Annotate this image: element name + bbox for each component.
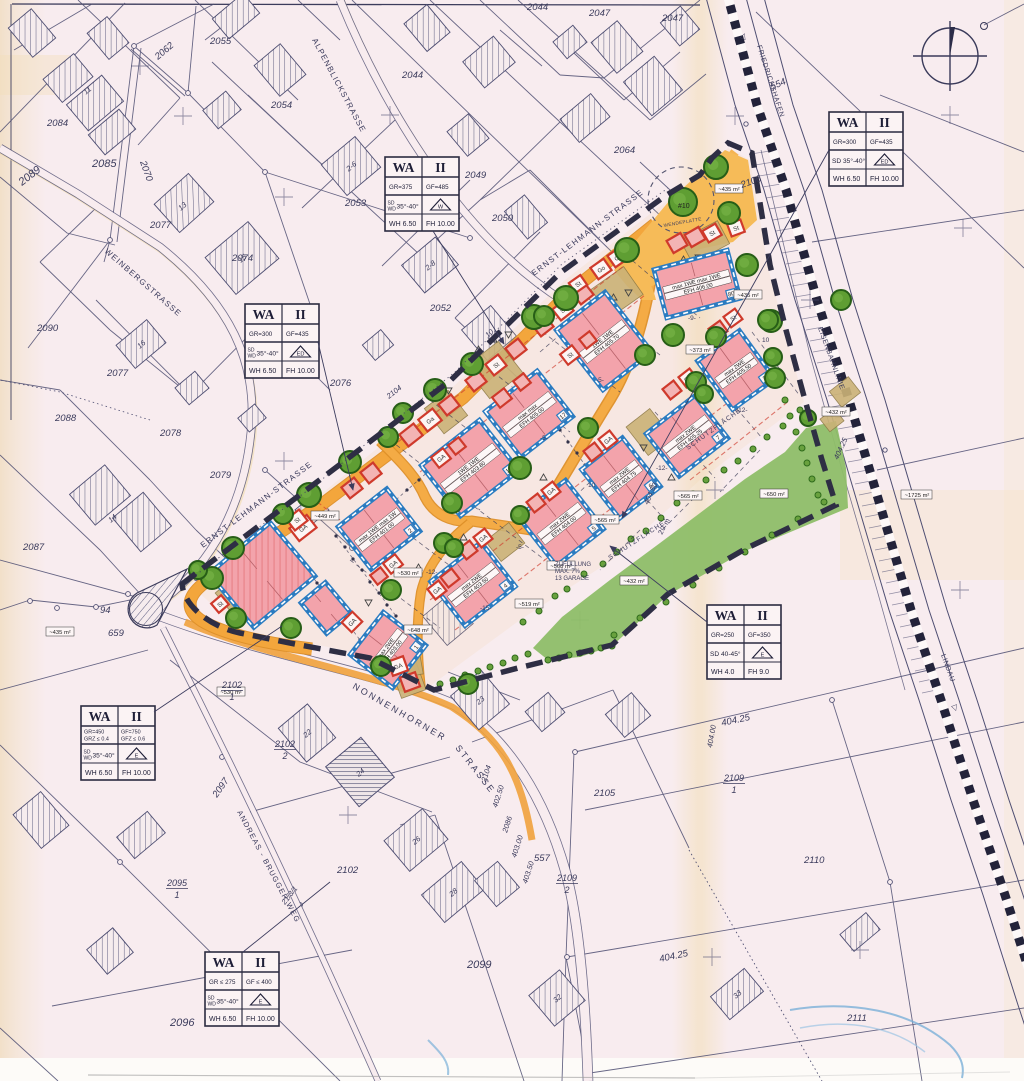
svg-text:W: W — [438, 205, 444, 211]
svg-text:II: II — [757, 608, 768, 623]
svg-text:#10: #10 — [678, 203, 690, 210]
svg-text:2076: 2076 — [329, 378, 352, 389]
svg-text:FH 10.00: FH 10.00 — [870, 176, 899, 183]
svg-text:SD 40-45°: SD 40-45° — [710, 650, 741, 658]
svg-text:-12-: -12- — [736, 407, 748, 414]
svg-text:~449 m²: ~449 m² — [314, 514, 335, 520]
svg-text:2079: 2079 — [209, 470, 232, 481]
svg-text:2052: 2052 — [429, 303, 452, 314]
svg-text:WA: WA — [715, 608, 737, 623]
svg-text:2078: 2078 — [159, 428, 182, 439]
svg-text:FH 10.00: FH 10.00 — [286, 368, 315, 375]
svg-text:WA: WA — [213, 955, 235, 970]
svg-text:-12-: -12- — [656, 465, 668, 472]
svg-text:2049: 2049 — [464, 170, 487, 181]
svg-text:WD: WD — [208, 1002, 217, 1008]
svg-text:GF=350: GF=350 — [748, 632, 771, 639]
svg-text:~519 m²: ~519 m² — [518, 602, 539, 608]
svg-text:~1725 m²: ~1725 m² — [905, 493, 930, 499]
svg-text:~648 m²: ~648 m² — [407, 628, 428, 634]
svg-text:GF=435: GF=435 — [286, 331, 309, 338]
svg-text:FH 10.00: FH 10.00 — [426, 221, 455, 228]
svg-text:2110: 2110 — [803, 855, 825, 866]
svg-text:~435 m²: ~435 m² — [718, 187, 739, 193]
svg-text:WH 6.50: WH 6.50 — [833, 176, 860, 183]
svg-text:GF=750: GF=750 — [121, 730, 141, 736]
svg-text:2088: 2088 — [54, 413, 77, 424]
svg-text:MAX. 7%: MAX. 7% — [555, 569, 581, 575]
svg-text:FH 10.00: FH 10.00 — [246, 1016, 275, 1023]
svg-text:35°-40°: 35°-40° — [257, 350, 280, 358]
svg-text:~650 m²: ~650 m² — [763, 492, 784, 498]
svg-text:2096: 2096 — [169, 1017, 195, 1029]
svg-text:94: 94 — [100, 605, 111, 616]
svg-text:WD: WD — [84, 756, 93, 762]
svg-text:2050: 2050 — [491, 213, 514, 224]
svg-text:GF=435: GF=435 — [870, 139, 893, 146]
svg-text:~565 m²: ~565 m² — [677, 494, 698, 500]
svg-text:WA: WA — [393, 160, 415, 175]
svg-text:~435 m²: ~435 m² — [49, 630, 70, 636]
svg-text:2084: 2084 — [46, 118, 68, 129]
svg-text:2044: 2044 — [526, 2, 548, 13]
svg-text:WH 6.50: WH 6.50 — [389, 221, 416, 228]
svg-text:2111: 2111 — [846, 1013, 867, 1024]
svg-text:E: E — [761, 653, 765, 659]
svg-text:2099: 2099 — [466, 959, 491, 971]
svg-text:FH 10.00: FH 10.00 — [122, 770, 151, 777]
svg-text:FH 9.0: FH 9.0 — [748, 669, 769, 676]
svg-text:2064: 2064 — [613, 145, 635, 156]
svg-text:ED: ED — [881, 160, 889, 166]
svg-text:2044: 2044 — [401, 70, 423, 81]
svg-text:WH 6.50: WH 6.50 — [209, 1016, 236, 1023]
svg-text:WD: WD — [248, 354, 257, 360]
svg-text:WA: WA — [837, 115, 859, 130]
svg-text:2109: 2109 — [556, 873, 577, 883]
svg-text:35°-40°: 35°-40° — [217, 998, 240, 1006]
svg-text:2105: 2105 — [593, 788, 616, 799]
svg-text:II: II — [879, 115, 890, 130]
svg-text:2085: 2085 — [91, 158, 117, 170]
svg-text:2: 2 — [281, 751, 287, 761]
svg-text:WH 6.50: WH 6.50 — [249, 368, 276, 375]
svg-text:GR=375: GR=375 — [389, 184, 413, 191]
svg-text:-15-: -15- — [480, 605, 492, 612]
svg-text:2053: 2053 — [344, 198, 367, 209]
svg-text:2047: 2047 — [661, 13, 684, 24]
svg-text:1: 1 — [174, 890, 179, 900]
svg-text:GR=450: GR=450 — [84, 730, 104, 736]
svg-text:GF ≤ 400: GF ≤ 400 — [246, 979, 272, 986]
svg-text:~530 m²: ~530 m² — [397, 571, 418, 577]
svg-text:10: 10 — [762, 337, 770, 344]
svg-text:35°-40°: 35°-40° — [93, 752, 116, 760]
svg-text:WA: WA — [89, 709, 111, 724]
svg-text:GR=250: GR=250 — [711, 632, 735, 639]
svg-text:II: II — [295, 307, 306, 322]
svg-text:GF=485: GF=485 — [426, 184, 449, 191]
svg-text:2077: 2077 — [106, 368, 129, 379]
svg-text:2087: 2087 — [22, 542, 45, 553]
svg-text:~373 m²: ~373 m² — [689, 348, 710, 354]
svg-text:GR=300: GR=300 — [833, 139, 857, 146]
svg-text:2047: 2047 — [588, 8, 611, 19]
svg-text:WH 6.50: WH 6.50 — [85, 770, 112, 777]
svg-text:-5-: -5- — [540, 435, 548, 442]
svg-text:GR=300: GR=300 — [249, 331, 273, 338]
svg-text:659: 659 — [108, 628, 125, 639]
svg-text:GFZ ≤ 0.6: GFZ ≤ 0.6 — [121, 737, 145, 743]
svg-text:II: II — [435, 160, 446, 175]
svg-text:2102: 2102 — [274, 739, 295, 749]
svg-text:II: II — [131, 709, 142, 724]
svg-text:1: 1 — [731, 785, 736, 795]
svg-text:2095: 2095 — [166, 878, 188, 888]
svg-text:2102: 2102 — [221, 680, 242, 690]
svg-text:WD: WD — [388, 207, 397, 213]
svg-text:-12-: -12- — [426, 569, 438, 576]
svg-text:-9-: -9- — [688, 315, 696, 322]
svg-text:2054: 2054 — [270, 100, 292, 111]
svg-text:2055: 2055 — [209, 36, 232, 47]
svg-text:II: II — [255, 955, 266, 970]
svg-text:ED: ED — [297, 352, 305, 358]
svg-text:2074: 2074 — [231, 253, 253, 264]
svg-text:~432 m²: ~432 m² — [623, 579, 644, 585]
svg-text:2077: 2077 — [149, 220, 172, 231]
svg-text:~565 m²: ~565 m² — [594, 518, 615, 524]
svg-text:2: 2 — [563, 885, 569, 895]
svg-text:35°-40°: 35°-40° — [397, 203, 420, 211]
svg-text:1: 1 — [229, 692, 234, 702]
svg-text:2090: 2090 — [36, 323, 59, 334]
svg-text:13 GARAGE: 13 GARAGE — [555, 576, 589, 582]
svg-text:WA: WA — [253, 307, 275, 322]
svg-text:SD 35°-40°: SD 35°-40° — [832, 157, 865, 165]
svg-text:10: 10 — [588, 482, 596, 489]
svg-text:GRZ ≤ 0.4: GRZ ≤ 0.4 — [84, 737, 109, 743]
svg-text:ZUFÜLLUNG: ZUFÜLLUNG — [555, 561, 591, 568]
svg-text:2102: 2102 — [336, 865, 359, 876]
svg-text:-5-: -5- — [516, 544, 524, 551]
svg-text:E: E — [135, 754, 139, 760]
svg-text:2109: 2109 — [723, 773, 744, 783]
svg-text:WH 4.0: WH 4.0 — [711, 669, 734, 676]
svg-text:GR ≤ 275: GR ≤ 275 — [209, 979, 236, 986]
svg-text:~432 m²: ~432 m² — [825, 410, 846, 416]
svg-text:E: E — [259, 1000, 263, 1006]
svg-text:557: 557 — [534, 853, 551, 864]
svg-text:-5-: -5- — [596, 377, 604, 384]
